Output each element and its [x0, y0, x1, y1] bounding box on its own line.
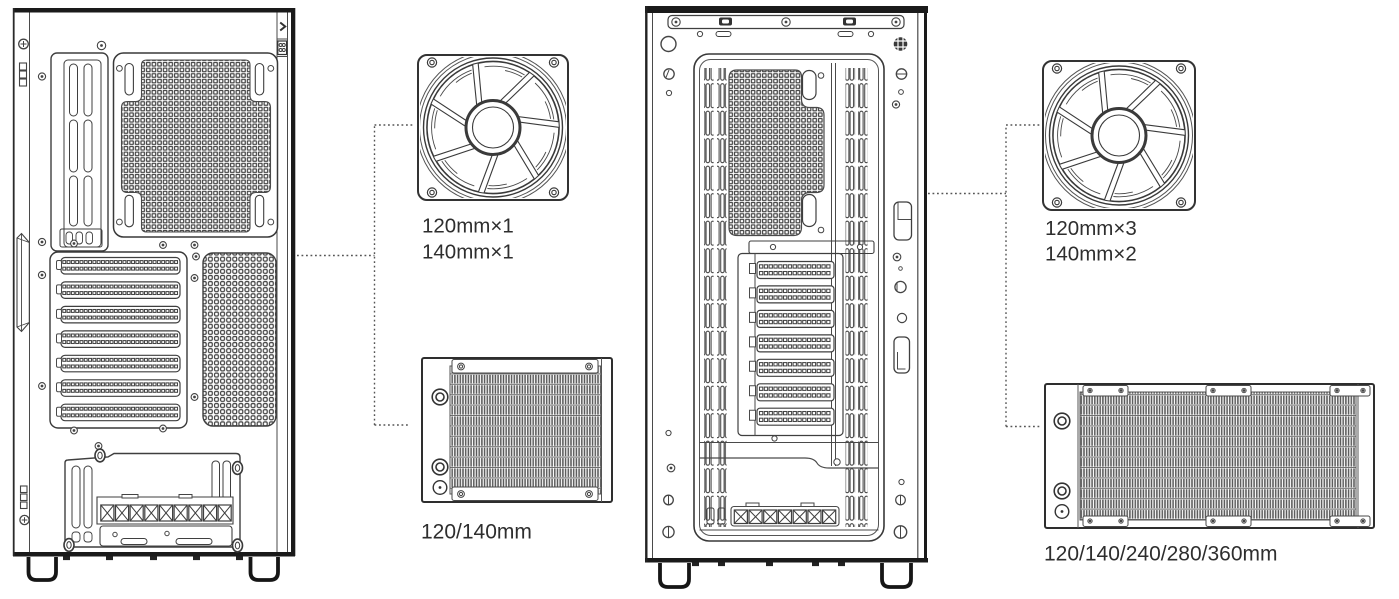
svg-text:140mm×1: 140mm×1 [422, 241, 514, 264]
svg-text:120mm×3: 120mm×3 [1045, 217, 1137, 240]
svg-text:120mm×1: 120mm×1 [422, 215, 514, 238]
svg-text:120/140mm: 120/140mm [421, 521, 532, 544]
svg-text:140mm×2: 140mm×2 [1045, 243, 1137, 266]
svg-text:120/140/240/280/360mm: 120/140/240/280/360mm [1044, 543, 1278, 566]
